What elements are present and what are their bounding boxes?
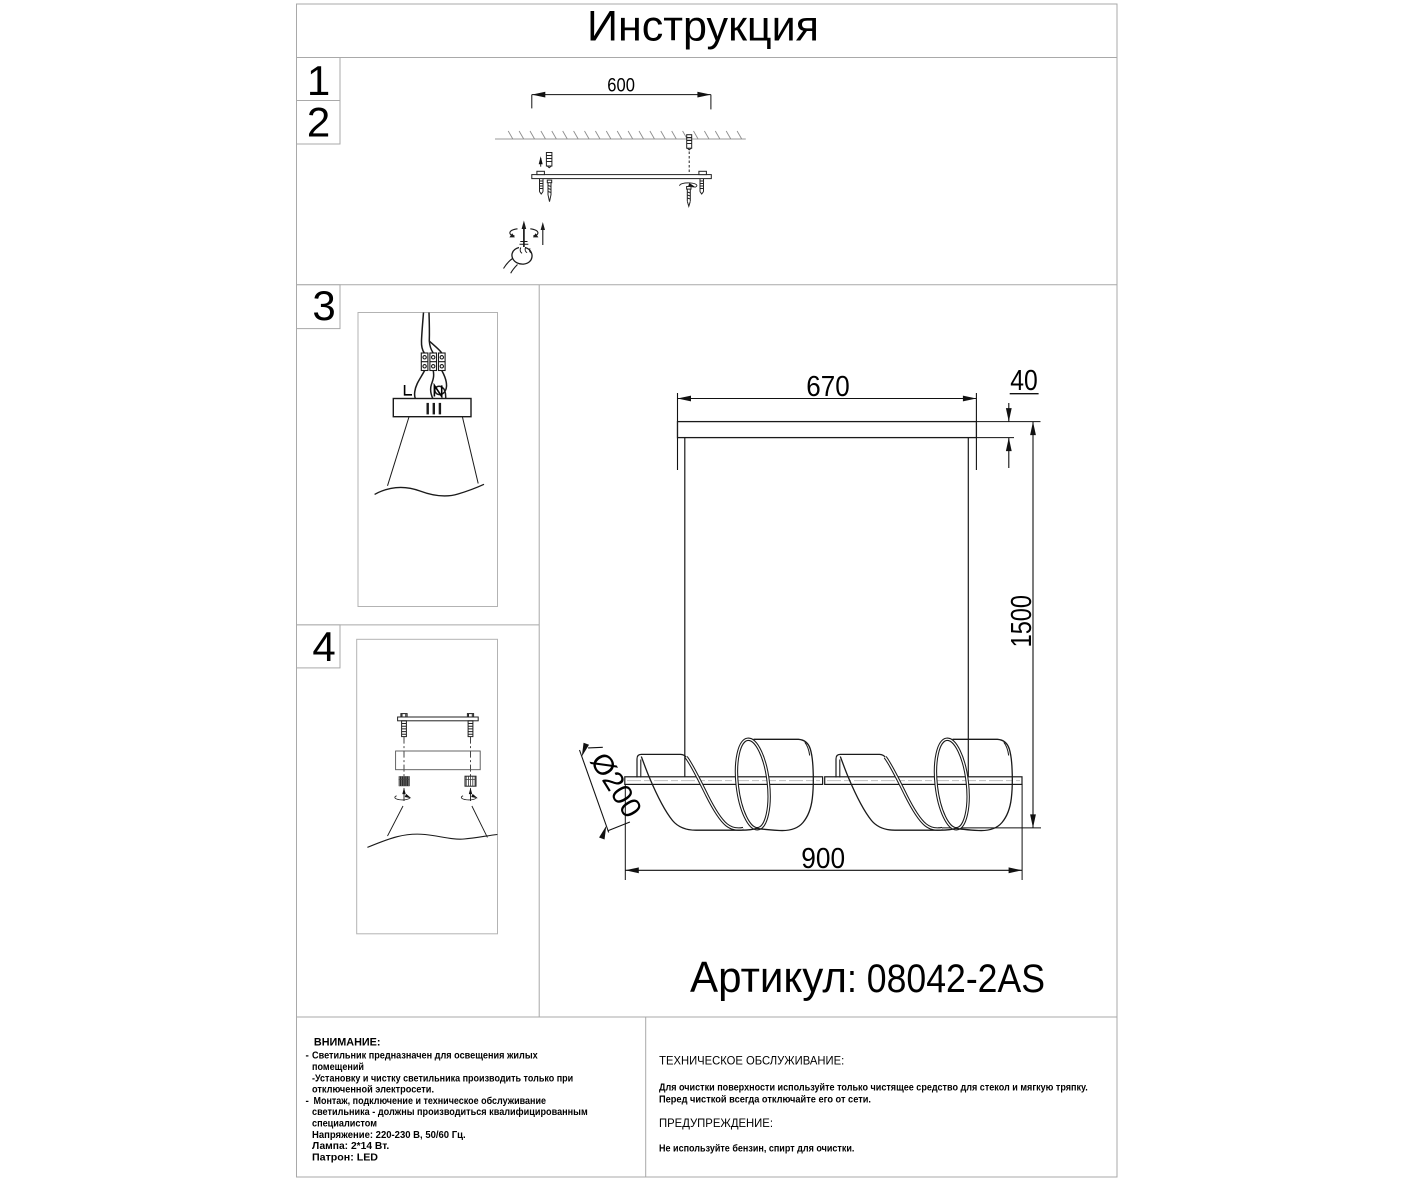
svg-text:40: 40 (1010, 365, 1037, 397)
svg-text:Перед чисткой всегда отключайт: Перед чисткой всегда отключайте его от с… (659, 1094, 871, 1105)
svg-text:Патрон: LED: Патрон: LED (312, 1152, 378, 1163)
svg-text:отключенной электросети.: отключенной электросети. (312, 1085, 434, 1096)
svg-text:Напряжение: 220-230 В, 50/60 Г: Напряжение: 220-230 В, 50/60 Гц. (312, 1130, 466, 1141)
svg-text:Монтаж, подключение и техничес: Монтаж, подключение и техническое обслуж… (314, 1095, 547, 1107)
svg-text:3: 3 (312, 282, 335, 329)
svg-text:Лампа: 2*14 Вт.: Лампа: 2*14 Вт. (312, 1141, 389, 1152)
svg-text:Для очистки поверхности исполь: Для очистки поверхности используйте толь… (659, 1082, 1088, 1093)
svg-text:-Установку и чистку светильник: -Установку и чистку светильника производ… (312, 1073, 573, 1084)
svg-text:900: 900 (801, 843, 845, 875)
svg-text:ПРЕДУПРЕЖДЕНИЕ:: ПРЕДУПРЕЖДЕНИЕ: (659, 1116, 773, 1130)
svg-text:специалистом: специалистом (312, 1119, 377, 1130)
svg-text:: 08042-2AS: : 08042-2AS (847, 957, 1045, 1001)
svg-text:4: 4 (312, 623, 335, 670)
svg-text:Артикул: Артикул (690, 953, 847, 1002)
svg-text:Инструкция: Инструкция (587, 3, 819, 51)
svg-text:2: 2 (307, 99, 330, 146)
svg-text:1500: 1500 (1006, 595, 1038, 647)
svg-text:светильника - должны производи: светильника - должны производиться квали… (312, 1106, 588, 1118)
svg-text:помещений: помещений (312, 1062, 364, 1073)
svg-text:600: 600 (607, 75, 635, 97)
svg-text:Светильник предназначен для ос: Светильник предназначен для освещения жи… (312, 1051, 538, 1062)
svg-text:1: 1 (307, 57, 330, 104)
svg-text:-: - (306, 1051, 309, 1062)
svg-text:ВНИМАНИЕ:: ВНИМАНИЕ: (314, 1036, 381, 1048)
svg-text:-: - (306, 1096, 309, 1107)
svg-text:ТЕХНИЧЕСКОЕ ОБСЛУЖИВАНИЕ:: ТЕХНИЧЕСКОЕ ОБСЛУЖИВАНИЕ: (659, 1053, 844, 1067)
svg-text:Не используйте бензин, спирт д: Не используйте бензин, спирт для очистки… (659, 1142, 855, 1154)
